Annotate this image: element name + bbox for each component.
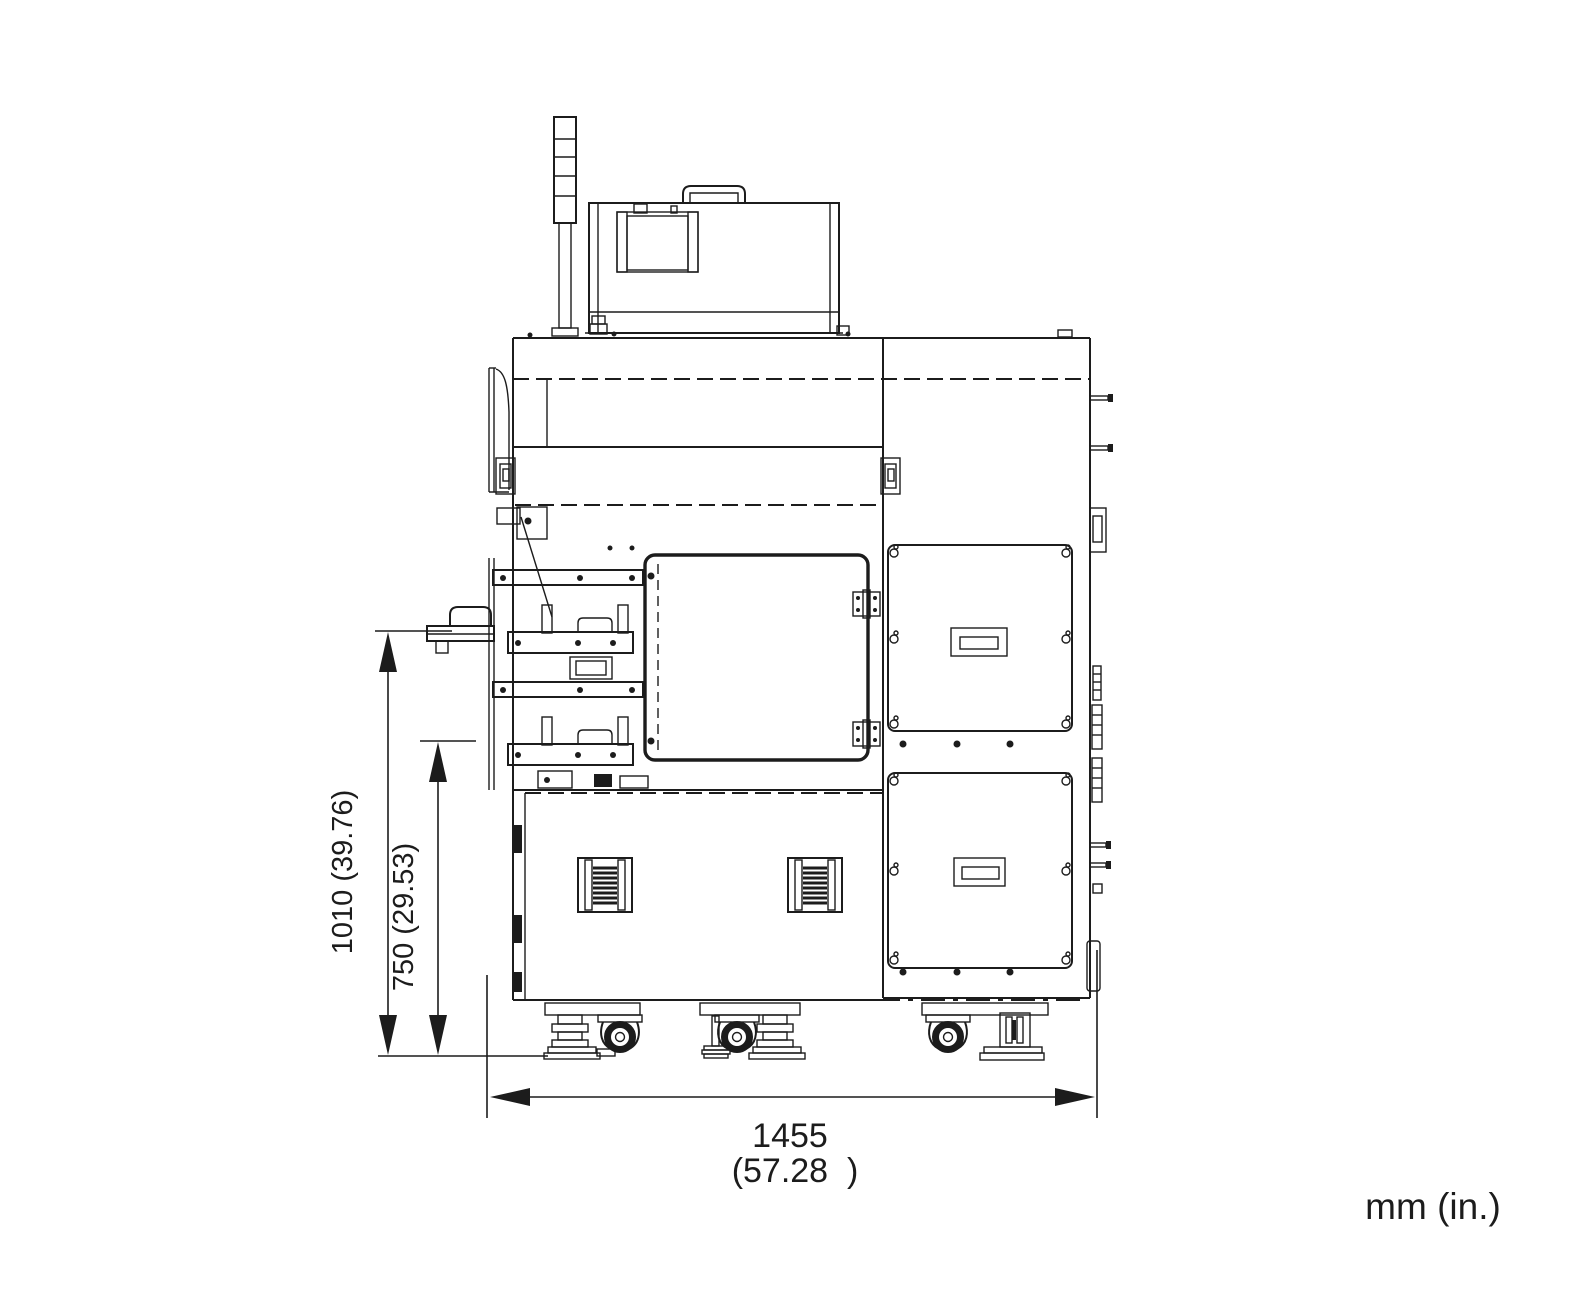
- display-unit: [585, 186, 849, 335]
- dimension-width-overall: 1455 (57.28 ): [487, 950, 1097, 1190]
- access-panel-upper: [888, 545, 1072, 748]
- signal-tower: [552, 117, 578, 336]
- caster-left: [597, 1015, 642, 1056]
- tower-pole: [552, 223, 578, 336]
- display-screen: [617, 212, 698, 272]
- machine-body: [427, 330, 1113, 1060]
- right-cabinet: [883, 394, 1113, 998]
- leveling-foot-right: [980, 1013, 1044, 1060]
- left-curved-guard: [489, 368, 552, 617]
- outrigger-bracket: [427, 607, 494, 653]
- dim-label-1455-in: (57.28 ): [732, 1152, 859, 1190]
- tray-upper: [493, 570, 643, 679]
- drawing-page: 1010 (39.76) 750 (29.53) 1455 (57.28 ) m…: [0, 0, 1576, 1301]
- base-frame: [516, 1000, 1088, 1060]
- front-door: [645, 555, 880, 760]
- dimension-height-tray: 750 (29.53): [388, 741, 476, 1055]
- panel-handle-upper: [951, 628, 1007, 656]
- leveling-foot-left: [544, 1015, 600, 1059]
- dim-label-1010: 1010 (39.76): [327, 790, 359, 954]
- dim-label-750: 750 (29.53): [388, 843, 420, 991]
- vent-grille-right: [788, 858, 842, 912]
- conveyor-band: [496, 447, 900, 551]
- tray-lower: [493, 682, 648, 788]
- caster-center: [702, 1015, 759, 1058]
- foot-plate-left: [545, 1003, 640, 1015]
- machine-dimension-drawing: 1010 (39.76) 750 (29.53) 1455 (57.28 ) m…: [0, 0, 1576, 1301]
- panel-handle-lower: [954, 858, 1005, 886]
- vent-grille-left: [578, 858, 632, 912]
- dim-label-1455-mm: 1455: [752, 1117, 828, 1155]
- lower-front-panel: [513, 790, 883, 1000]
- caster-right: [926, 1015, 970, 1050]
- access-panel-lower: [888, 773, 1072, 976]
- units-label: mm (in.): [1365, 1186, 1501, 1227]
- foot-plate-center: [700, 1003, 800, 1015]
- carrying-handle: [683, 186, 745, 203]
